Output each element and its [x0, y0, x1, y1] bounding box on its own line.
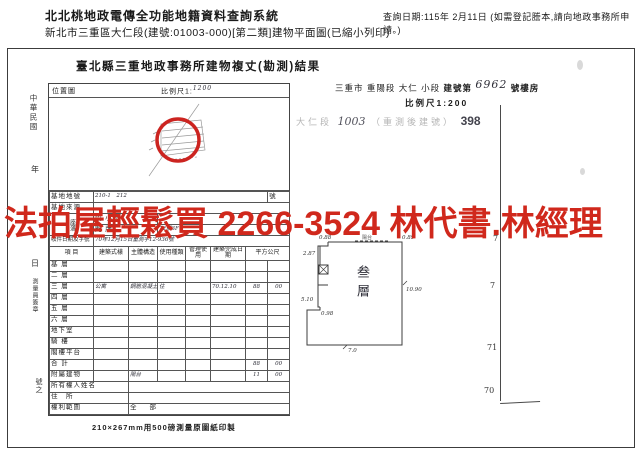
building-number-line: 三重市 重陽段 大仁 小段 建號第 6962 號樓房 [335, 81, 539, 94]
plan-dimension-label: 0.98 [321, 311, 333, 317]
area-dec [268, 293, 290, 304]
plan-dimension-label: 10.90 [406, 287, 422, 293]
scan-noise [577, 60, 583, 70]
area-int [246, 315, 268, 326]
floor-label: 閣樓平台 [50, 348, 94, 359]
location-sketch-drawing [49, 98, 287, 190]
area-dec [268, 315, 290, 326]
margin-serial-text: 號之 [33, 378, 43, 394]
area-int [246, 326, 268, 337]
stamp-section: 大仁段 [296, 117, 332, 127]
area-dec: 00 [268, 359, 290, 370]
area-int [246, 304, 268, 315]
area-int [246, 337, 268, 348]
area-int [246, 271, 268, 282]
section-label: 重陽段 [367, 83, 396, 93]
advertising-watermark: 法拍屋輕鬆買 2266-3524 林代書.林經理 [4, 196, 640, 245]
area-int: 88 [246, 282, 268, 293]
floor-row: 四 層 [50, 293, 290, 304]
red-circle-annotation [157, 119, 199, 161]
rights-scope-label: 權利範圍 [50, 403, 129, 414]
table-header-row: 項 目 建築式樣 主體構造 使用種類 管理使用 建築完成日期 平方公尺 [50, 247, 290, 261]
plan-dimension-label: 2.87 [303, 251, 315, 257]
area-dec [268, 271, 290, 282]
building-no-suffix: 號樓房 [511, 83, 540, 93]
location-sketch [49, 98, 289, 191]
owner-address-label: 住 所 [50, 392, 129, 403]
area-int: 88 [246, 359, 268, 370]
area-dec [268, 260, 290, 271]
area-dec: 00 [268, 370, 290, 381]
location-map-header: 位置圖 比例尺1:1200 [49, 84, 289, 98]
owner-address-row: 住 所 [50, 392, 290, 403]
floor-row: 六 層 [50, 315, 290, 326]
scan-noise [580, 168, 585, 175]
floor-plan: 叁層 陽台 0.882.875.100.987.010.900.89 [295, 225, 545, 415]
stamp-number-2: 398 [461, 114, 481, 128]
subsection-label: 大仁 小段 [399, 83, 440, 93]
floor-label: 地下室 [50, 326, 94, 337]
area-int [246, 260, 268, 271]
col-style: 建築式樣 [94, 247, 129, 261]
floor-row: 騎 樓 [50, 337, 290, 348]
fold-mark-number: 7 [490, 281, 495, 290]
floor-row: 合 計8800 [50, 359, 290, 370]
margin-year-text: 年 [31, 164, 39, 175]
floor-label: 合 計 [50, 359, 94, 370]
rights-scope-value: 全 部 [129, 403, 290, 414]
building-no-prefix: 建號第 [444, 83, 473, 93]
stamp-number-1: 1003 [338, 115, 366, 128]
area-dec: 00 [268, 282, 290, 293]
area-int: 11 [246, 370, 268, 381]
floor-label: 二 層 [50, 271, 94, 282]
col-use-type: 使用種類 [158, 247, 186, 261]
fold-line [500, 105, 501, 401]
survey-result-title: 臺北縣三重地政事務所建物複丈(勘測)結果 [76, 58, 321, 74]
screenshot-root: 北北桃地政電傳全功能地籍資料查詢系統 查詢日期:115年 2月11日 (如需登記… [0, 0, 640, 451]
survey-form: 位置圖 比例尺1:1200 [48, 83, 290, 416]
floor-row: 五 層 [50, 304, 290, 315]
query-date-text: 查詢日期:115年 2月11日 (如需登記謄本,請向地政事務所申請。) [383, 10, 640, 36]
col-completion: 建築完成日期 [211, 247, 246, 261]
system-title: 北北桃地政電傳全功能地籍資料查詢系統 [45, 7, 279, 24]
plan-dimension-label: 7.0 [348, 348, 357, 354]
fold-mark-number: 70 [484, 386, 494, 395]
floor-name-label: 叁層 [355, 265, 371, 303]
floor-label: 四 層 [50, 293, 94, 304]
area-dec [268, 337, 290, 348]
document-description: 新北市三重區大仁段(建號:01003-000)[第二類]建物平面圖(已縮小列印) [45, 25, 390, 40]
paper-spec-note: 210×267mm用500磅測量原圖紙印製 [92, 422, 236, 433]
col-area: 平方公尺 [246, 247, 290, 261]
area-int [246, 348, 268, 359]
floor-label: 六 層 [50, 315, 94, 326]
floor-row: 三 層公寓鋼筋混凝土住70.12.108800 [50, 282, 290, 293]
fold-mark-number: 71 [487, 343, 497, 352]
margin-surveyor-text: 測量員簽章 [30, 278, 39, 313]
floor-label: 基 層 [50, 260, 94, 271]
rights-scope-row: 權利範圍 全 部 [50, 403, 290, 414]
floor-row: 附屬建物陽台1100 [50, 370, 290, 381]
plan-scale-label: 比例尺1:200 [405, 97, 468, 109]
building-no-value: 6962 [475, 78, 507, 91]
owner-name-label: 所有權人姓名 [50, 381, 129, 392]
city-label: 三重市 [335, 83, 364, 93]
area-int [246, 293, 268, 304]
floor-label: 附屬建物 [50, 370, 94, 381]
location-map-label: 位置圖 [52, 86, 76, 96]
floor-label: 五 層 [50, 304, 94, 315]
floor-row: 閣樓平台 [50, 348, 290, 359]
floor-row: 二 層 [50, 271, 290, 282]
col-manage: 管理使用 [186, 247, 211, 261]
stamp-mid-text: （重測後建號） [371, 117, 455, 127]
margin-day-text: 日 [31, 258, 39, 269]
area-dec [268, 348, 290, 359]
area-dec [268, 326, 290, 337]
owner-name-row: 所有權人姓名 [50, 381, 290, 392]
col-structure: 主體構造 [129, 247, 158, 261]
floor-plan-outline [295, 225, 545, 415]
floor-row: 基 層 [50, 260, 290, 271]
area-dec [268, 304, 290, 315]
plan-dimension-label: 5.10 [301, 297, 313, 303]
resurvey-stamp: 大仁段 1003 （重測後建號） 398 [296, 114, 481, 128]
margin-era-text: 中華民國 [28, 94, 39, 132]
col-item: 項 目 [50, 247, 94, 261]
floor-row: 地下室 [50, 326, 290, 337]
floor-label: 三 層 [50, 282, 94, 293]
location-map-scale: 比例尺1:1200 [161, 85, 212, 96]
floor-label: 騎 樓 [50, 337, 94, 348]
